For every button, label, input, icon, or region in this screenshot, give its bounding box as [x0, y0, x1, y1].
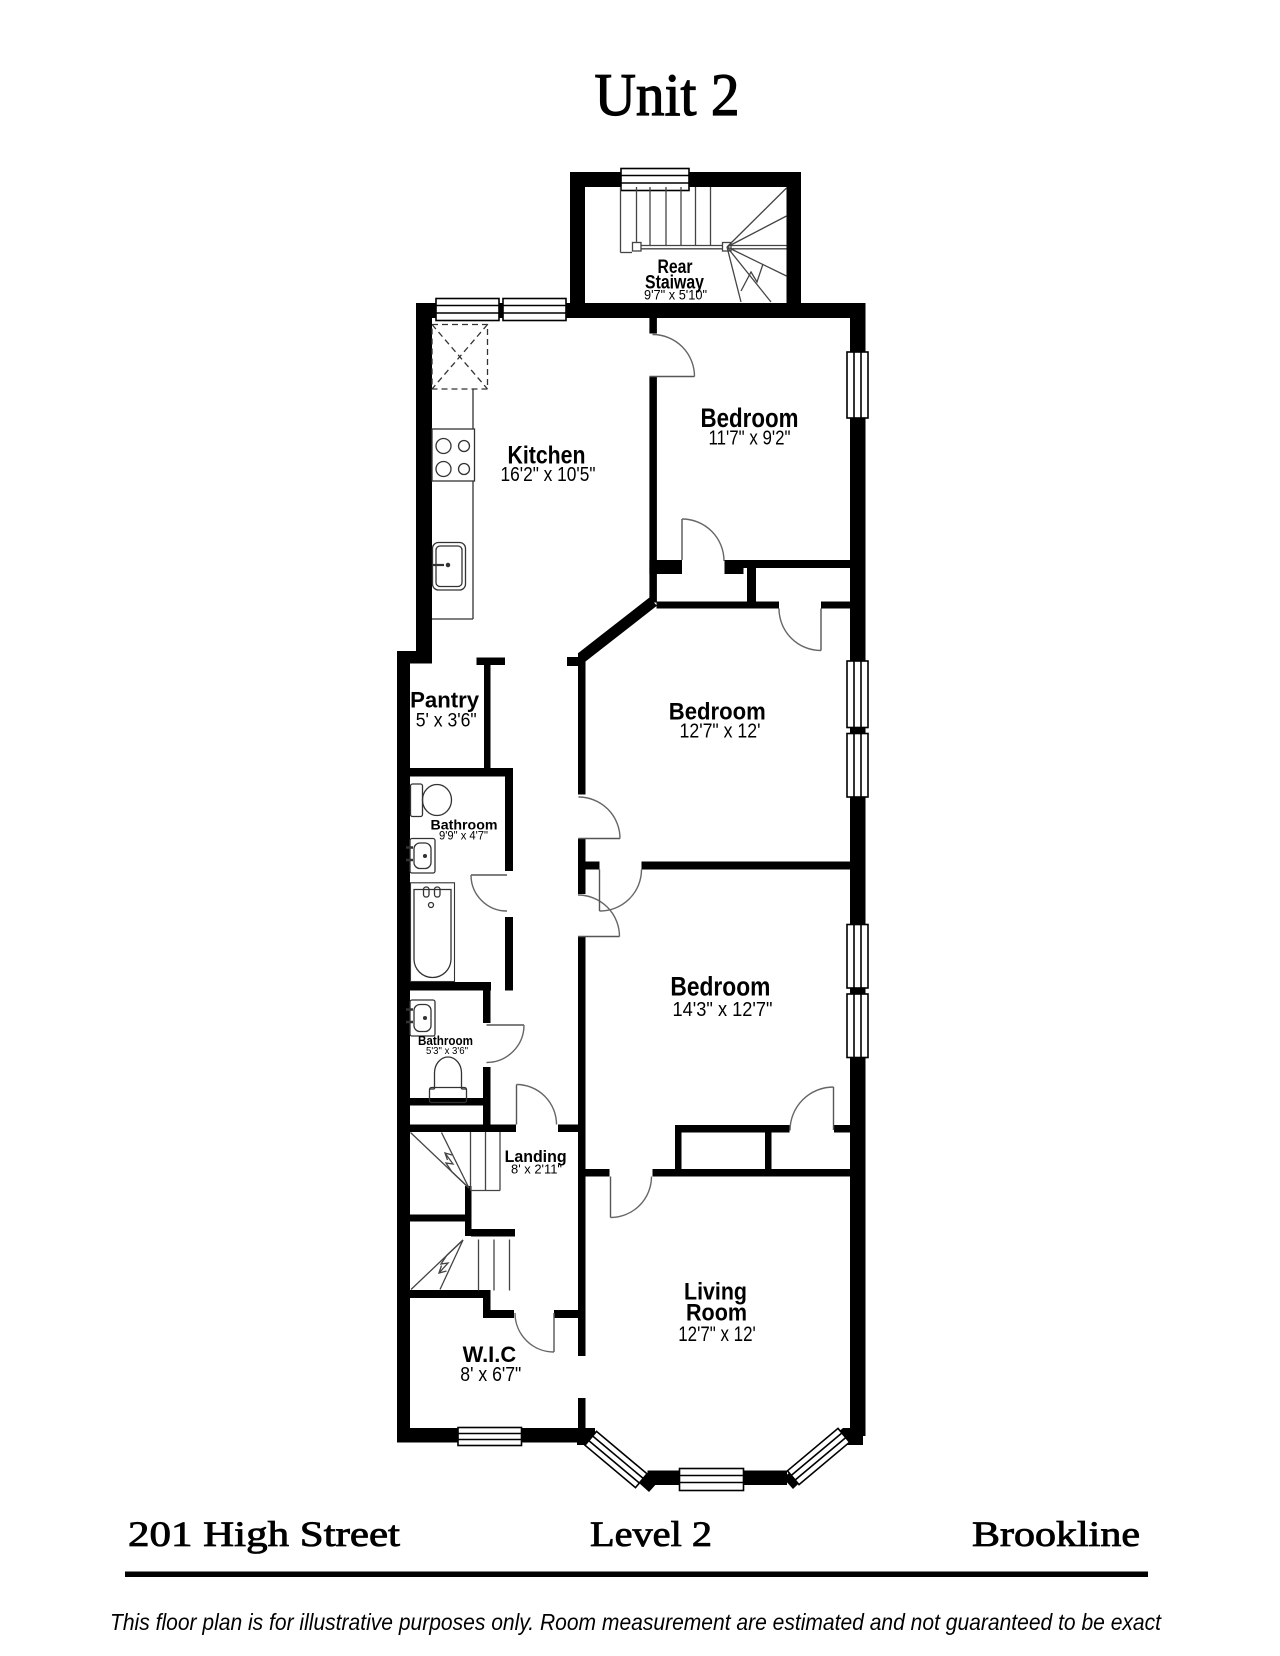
svg-text:16'2" x 10'5": 16'2" x 10'5" — [501, 464, 596, 486]
svg-text:5' x 3'6": 5' x 3'6" — [416, 711, 477, 732]
svg-text:9'7" x 5'10": 9'7" x 5'10" — [644, 288, 707, 303]
svg-text:9'9" x 4'7": 9'9" x 4'7" — [439, 831, 488, 843]
svg-text:12'7" x 12': 12'7" x 12' — [678, 1323, 756, 1346]
svg-text:8' x 2'11": 8' x 2'11" — [511, 1162, 562, 1177]
svg-text:Level 2: Level 2 — [590, 1514, 712, 1554]
svg-text:11'7" x 9'2": 11'7" x 9'2" — [709, 428, 791, 450]
svg-text:Brookline: Brookline — [972, 1514, 1140, 1554]
svg-text:This floor plan is for illustr: This floor plan is for illustrative purp… — [110, 1609, 1162, 1635]
svg-text:Unit 2: Unit 2 — [595, 62, 740, 128]
svg-text:8' x 6'7": 8' x 6'7" — [460, 1364, 521, 1386]
svg-text:Bedroom: Bedroom — [670, 972, 770, 1002]
svg-text:14'3" x 12'7": 14'3" x 12'7" — [673, 999, 773, 1021]
svg-text:Pantry: Pantry — [410, 688, 480, 713]
svg-text:5'3" x 3'6": 5'3" x 3'6" — [426, 1045, 468, 1057]
svg-text:12'7" x 12': 12'7" x 12' — [680, 721, 761, 743]
svg-text:201 High Street: 201 High Street — [128, 1514, 400, 1554]
